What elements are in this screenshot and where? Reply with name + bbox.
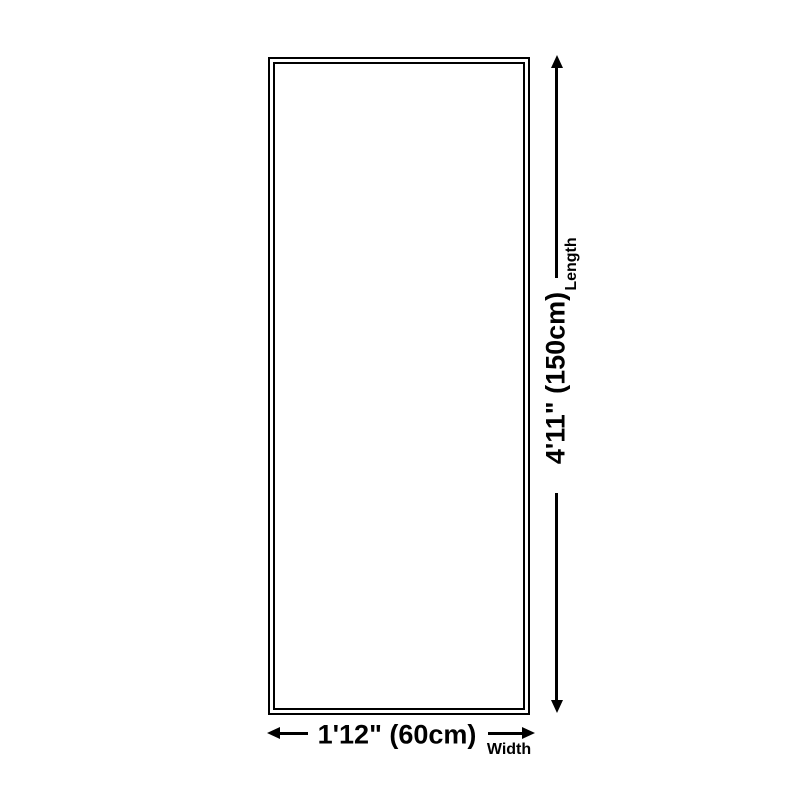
- width-label: Width: [487, 742, 531, 758]
- rug-inner-outline: [273, 62, 525, 710]
- length-label: Length: [564, 237, 580, 290]
- width-dimension-line-right: [488, 732, 522, 735]
- width-value: 1'12" (60cm): [318, 722, 477, 749]
- dimension-diagram: Length 4'11" (150cm) 1'12" (60cm) Width: [0, 0, 800, 800]
- length-dimension-line-top: [555, 66, 558, 278]
- length-value: 4'11" (150cm): [543, 292, 570, 464]
- arrow-down-icon: [551, 700, 563, 713]
- width-dimension-line-left: [279, 732, 308, 735]
- rug-outline: [268, 57, 530, 715]
- length-dimension-line-bottom: [555, 493, 558, 704]
- arrow-right-icon: [522, 727, 535, 739]
